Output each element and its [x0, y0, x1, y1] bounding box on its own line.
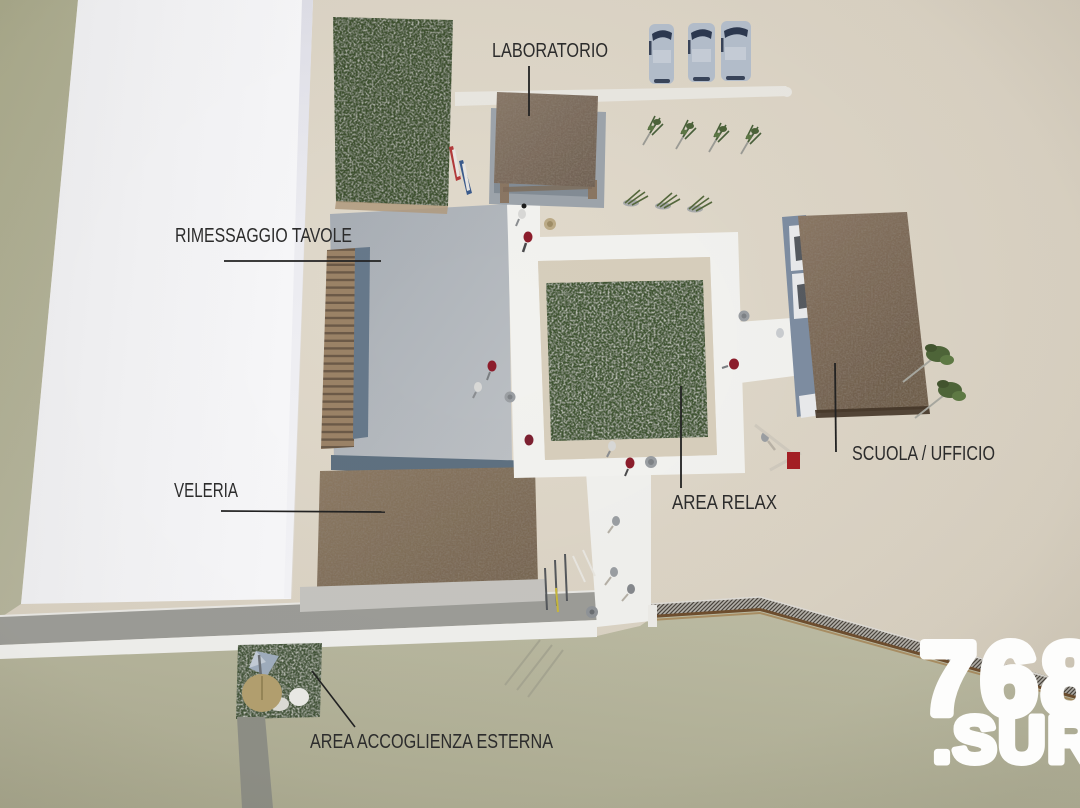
svg-text:RIMESSAGGIO TAVOLE: RIMESSAGGIO TAVOLE [175, 225, 352, 247]
svg-text:VELERIA: VELERIA [174, 480, 238, 502]
svg-text:SCUOLA / UFFICIO: SCUOLA / UFFICIO [852, 443, 995, 465]
svg-text:AREA ACCOGLIENZA ESTERNA: AREA ACCOGLIENZA ESTERNA [310, 731, 554, 753]
svg-text:.SURF: .SURF [933, 703, 1080, 776]
svg-text:AREA RELAX: AREA RELAX [672, 492, 777, 514]
svg-text:LABORATORIO: LABORATORIO [492, 40, 608, 62]
